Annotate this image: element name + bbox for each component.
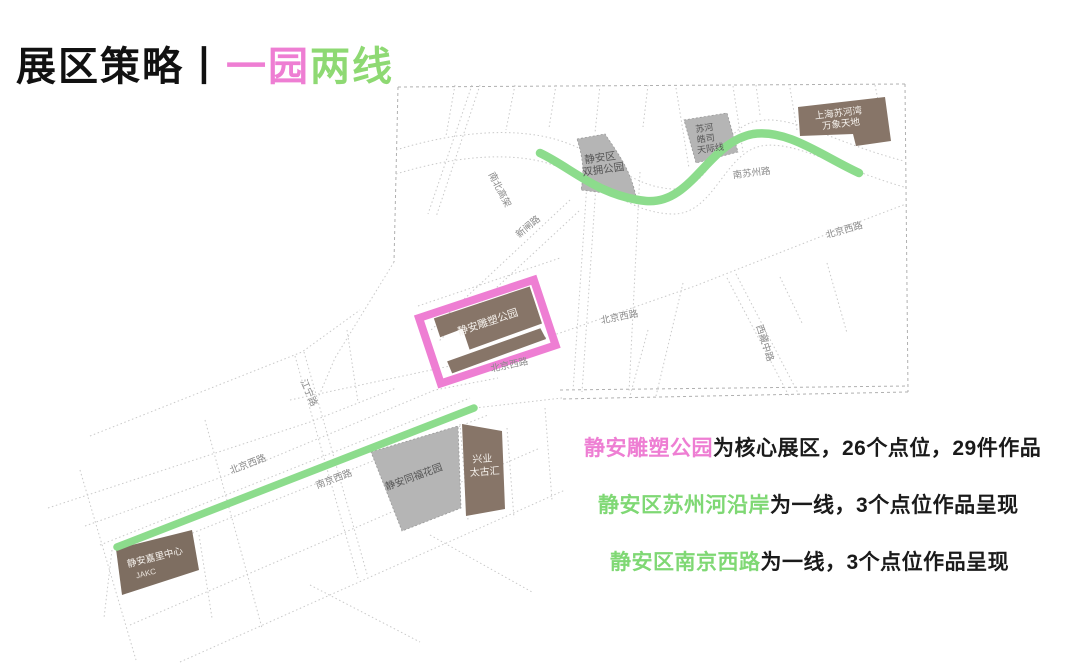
road-line — [430, 535, 532, 592]
block-label-line: 兴业 — [472, 452, 493, 465]
road-line — [549, 85, 556, 128]
road-line — [347, 330, 358, 402]
legend-line-nanjing-road: 静安区南京西路为一线，3个点位作品呈现 — [572, 550, 1074, 576]
road-label-jiangning: 江宁路 — [297, 377, 320, 408]
road-line — [827, 263, 847, 333]
road-line — [780, 277, 803, 325]
road-label-xinzha: 新闸路 — [513, 213, 543, 241]
road-line — [199, 535, 212, 618]
road-line — [310, 585, 420, 642]
road-line — [90, 310, 360, 436]
legend-lead-suzhou-river: 静安区苏州河沿岸 — [598, 494, 770, 517]
legend-line-sculpture-park: 静安雕塑公园为核心展区，26个点位，29件作品 — [572, 436, 1074, 462]
road-line — [756, 85, 760, 115]
road-line — [290, 204, 906, 400]
road-line — [104, 550, 112, 618]
road-label-beijingxi-4: 北京西路 — [228, 452, 268, 477]
road-line — [573, 168, 588, 391]
road-line — [428, 85, 472, 214]
legend: 静安雕塑公园为核心展区，26个点位，29件作品 静安区苏州河沿岸为一线，3个点位… — [572, 436, 1074, 607]
sculpture-park-group: 静安雕塑公园 — [419, 280, 556, 384]
slide: 展区策略丨一园两线 — [0, 0, 1080, 664]
road-line — [48, 388, 396, 508]
legend-rest-nanjing-road: 为一线，3个点位作品呈现 — [761, 551, 1010, 574]
road-line — [507, 428, 514, 518]
road-line — [475, 398, 562, 408]
legend-line-suzhou-river: 静安区苏州河沿岸为一线，3个点位作品呈现 — [572, 493, 1074, 519]
legend-rest-suzhou-river: 为一线，3个点位作品呈现 — [770, 494, 1019, 517]
road-line — [506, 85, 515, 130]
road-line — [318, 262, 394, 398]
map-border-bottom — [560, 392, 908, 399]
road-line — [205, 420, 262, 628]
road-line — [582, 170, 597, 392]
road-line — [643, 85, 648, 127]
road-line — [545, 408, 552, 500]
road-label-beijingxi-1: 北京西路 — [824, 219, 864, 241]
road-line — [595, 85, 600, 133]
road-label-beijingxi-2: 北京西路 — [600, 307, 640, 326]
road-line — [446, 85, 455, 136]
map-border-right — [905, 84, 908, 392]
road-line — [630, 330, 648, 396]
map-border-left — [394, 87, 398, 262]
legend-lead-sculpture-park: 静安雕塑公园 — [584, 437, 713, 460]
road-label-nanbei-viaduct: 南北高架 — [486, 170, 514, 210]
road-line — [180, 490, 565, 662]
legend-lead-nanjing-road: 静安区南京西路 — [610, 551, 761, 574]
legend-rest-sculpture-park: 为核心展区，26个点位，29件作品 — [713, 437, 1041, 460]
road-label-xizangzhong: 西藏中路 — [753, 323, 776, 363]
road-label-nansuzhou: 南苏州路 — [732, 165, 772, 182]
map-border-bottom-2 — [560, 386, 908, 390]
road-line — [875, 85, 878, 100]
map-border-top — [398, 84, 905, 87]
road-line — [436, 85, 480, 217]
road-line — [656, 283, 683, 396]
